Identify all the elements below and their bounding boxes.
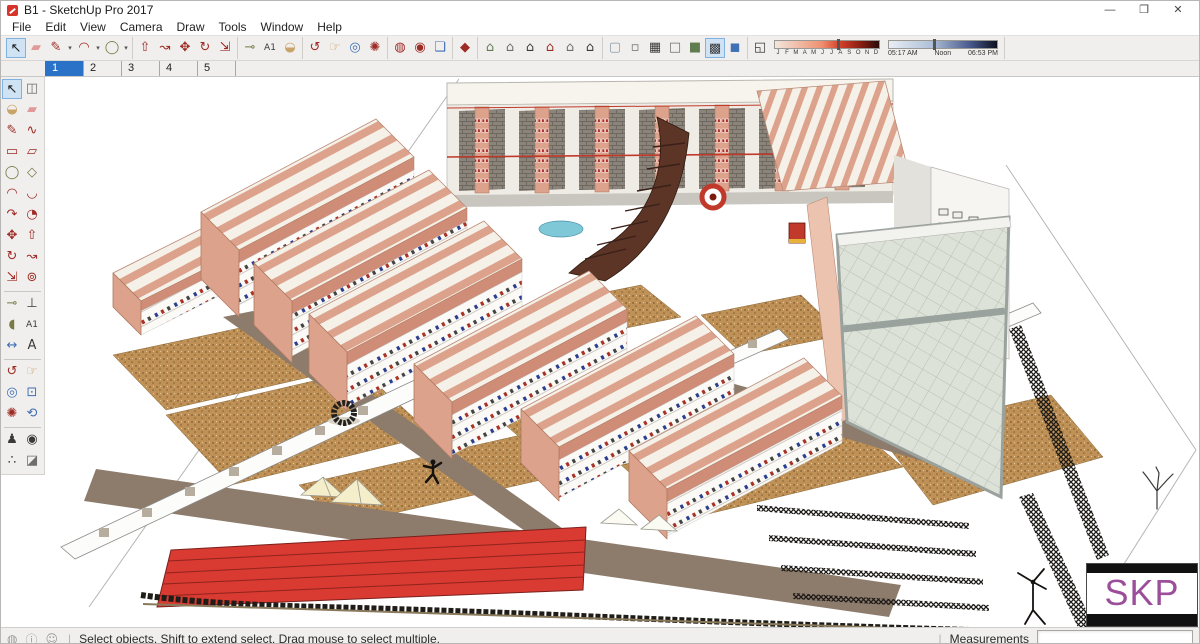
scene-tab-endcap [235,61,252,76]
view-iso-icon[interactable]: ⌂ [480,38,500,58]
pie-tool-icon[interactable]: ◔ [22,205,42,225]
shadow-noon-label: Noon [934,50,951,57]
toolbar-group-draw: ↖ ▰ ✎ ▾ ◠ ▾ ◯ ▾ [4,37,133,59]
paint-bucket-icon[interactable]: ◒ [280,38,300,58]
restore-icon[interactable]: ❐ [1127,1,1161,19]
status-separator: | [68,632,71,644]
status-bar: ◍ ⓘ ☺ | Select objects. Shift to extend … [1,627,1199,644]
shadow-start-time: 05:17 AM [888,50,918,57]
polygon-tool-icon[interactable]: ◇ [22,163,42,183]
palette-divider [4,427,41,428]
select-icon[interactable]: ↖ [6,38,26,58]
orbit-icon[interactable]: ↺ [305,38,325,58]
arc-tool-icon[interactable]: ◠ [2,184,22,204]
arc-icon[interactable]: ◠ [74,38,94,58]
scene-tab-3[interactable]: 3 [121,61,159,76]
protractor-tool-icon[interactable]: ◖ [2,315,22,335]
palette-divider [4,359,41,360]
style-shaded-textures-icon[interactable]: ▩ [705,38,725,58]
scene-tabs-bar: 1 2 3 4 5 [1,61,1199,77]
push-pull-tool-icon[interactable]: ⇧ [22,226,42,246]
push-pull-icon[interactable]: ⇧ [135,38,155,58]
minimize-icon[interactable]: — [1093,1,1127,19]
pool [539,221,583,237]
toolbar-group-styles: ▢ ▫ ▦ □ ■ ▩ ◼ [603,37,748,59]
scene-tab-1[interactable]: 1 [45,61,83,76]
orbit-tool-icon[interactable]: ↺ [2,362,22,382]
look-around-tool-icon[interactable]: ◉ [22,430,42,450]
three-point-arc-tool-icon[interactable]: ↷ [2,205,22,225]
circle-tool-icon[interactable]: ◯ [2,163,22,183]
zoom-extents-icon[interactable]: ✺ [365,38,385,58]
watermark-text: SKP [1087,573,1197,613]
3d-text-tool-icon[interactable]: A [22,336,42,356]
sketchup-logo [7,5,18,16]
time-slider-handle[interactable] [933,39,936,50]
model-viewport[interactable]: ↖◫ ◒▰ ✎∿ ▭▱ ◯◇ ◠◡ ↷◔ ✥⇧ ↻↝ ⇲⊚ ⊸⊥ ◖A1 ↔A … [1,77,1200,627]
window-title: B1 - SketchUp Pro 2017 [24,3,153,17]
warehouse-icon[interactable]: ◆ [455,38,475,58]
title-bar: B1 - SketchUp Pro 2017 — ❐ ✕ [1,1,1199,19]
zoom-window-tool-icon[interactable]: ⊡ [22,383,42,403]
style-shaded-icon[interactable]: ■ [685,38,705,58]
model-3d-view [1,77,1200,627]
zoom-icon[interactable]: ◎ [345,38,365,58]
toolbar-group-construction: ⊸ A1 ◒ [238,37,303,59]
close-icon[interactable]: ✕ [1161,1,1195,19]
windmill-figure [1018,569,1046,624]
rotate-icon[interactable]: ↻ [195,38,215,58]
rotate-tool-icon[interactable]: ↻ [2,247,22,267]
measurements-label: Measurements [950,632,1029,644]
toolbar-group-camera: ↺ ☞ ◎ ✺ [303,37,388,59]
line-icon[interactable]: ✎ [46,38,66,58]
pan-icon[interactable]: ☞ [325,38,345,58]
select-tool-icon[interactable]: ↖ [2,79,22,99]
toolbar-group-location: ◍ ◉ ❏ [388,37,453,59]
menu-camera[interactable]: Camera [113,20,170,34]
toolbar-group-views: ⌂ ⌂ ⌂ ⌂ ⌂ ⌂ [478,37,603,59]
eraser-tool-icon[interactable]: ▰ [22,100,42,120]
toolbar-group-warehouse: ◆ [453,37,478,59]
move-icon[interactable]: ✥ [175,38,195,58]
section-plane-tool-icon[interactable]: ◪ [22,451,42,471]
walk-tool-icon[interactable]: ∴ [2,451,22,471]
style-hidden-line-icon[interactable]: □ [665,38,685,58]
circle-icon[interactable]: ◯ [102,38,122,58]
make-component-icon[interactable]: ◫ [22,79,42,99]
red-wheel [702,186,724,208]
sketch-tree [1143,467,1173,509]
style-monochrome-icon[interactable]: ◼ [725,38,745,58]
scale-icon[interactable]: ⇲ [215,38,235,58]
menu-draw[interactable]: Draw [170,20,212,34]
circle-dropdown-icon[interactable]: ▾ [122,38,130,58]
view-right-icon[interactable]: ⌂ [540,38,560,58]
position-camera-tool-icon[interactable]: ♟ [2,430,22,450]
line-tool-icon[interactable]: ✎ [2,121,22,141]
pan-tool-icon[interactable]: ☞ [22,362,42,382]
measurements-input[interactable] [1037,630,1193,644]
menu-file[interactable]: File [5,20,38,34]
text-icon[interactable]: A1 [260,38,280,58]
month-slider-handle[interactable] [837,39,840,50]
view-top-icon[interactable]: ⌂ [500,38,520,58]
sign-in-icon[interactable]: ☺ [46,632,59,644]
previous-view-tool-icon[interactable]: ⟲ [22,404,42,424]
shadow-month-slider[interactable]: JFMAMJJASOND [774,40,880,56]
credits-icon[interactable]: ⓘ [25,631,37,644]
menu-window[interactable]: Window [254,20,311,34]
move-tool-icon[interactable]: ✥ [2,226,22,246]
large-tool-set: ↖◫ ◒▰ ✎∿ ▭▱ ◯◇ ◠◡ ↷◔ ✥⇧ ↻↝ ⇲⊚ ⊸⊥ ◖A1 ↔A … [1,77,45,475]
eraser-icon[interactable]: ▰ [26,38,46,58]
menu-view[interactable]: View [73,20,113,34]
menu-help[interactable]: Help [310,20,349,34]
skp-watermark: SKP [1086,563,1198,627]
zoom-tool-icon[interactable]: ◎ [2,383,22,403]
follow-me-icon[interactable]: ↝ [155,38,175,58]
axes-tool-icon[interactable]: ⊥ [22,294,42,314]
view-left-icon[interactable]: ⌂ [560,38,580,58]
shadow-time-slider[interactable]: 05:17 AM Noon 06:53 PM [888,40,998,57]
view-back-icon[interactable]: ⌂ [580,38,600,58]
text-tool-icon[interactable]: A1 [22,315,42,335]
menu-bar: File Edit View Camera Draw Tools Window … [1,19,1199,35]
rotated-rectangle-tool-icon[interactable]: ▱ [22,142,42,162]
toolbar-group-edit: ⇧ ↝ ✥ ↻ ⇲ [133,37,238,59]
scene-tab-5[interactable]: 5 [197,61,235,76]
palette-divider [4,291,41,292]
menu-tools[interactable]: Tools [212,20,254,34]
scene-tab-4[interactable]: 4 [159,61,197,76]
pergola-roof [757,81,911,191]
rectangle-tool-icon[interactable]: ▭ [2,142,22,162]
dimension-tool-icon[interactable]: ↔ [2,336,22,356]
scene-tab-2[interactable]: 2 [83,61,121,76]
style-wireframe-icon[interactable]: ▦ [645,38,665,58]
toggle-terrain-icon[interactable]: ◉ [410,38,430,58]
freehand-tool-icon[interactable]: ∿ [22,121,42,141]
sketchup-window: B1 - SketchUp Pro 2017 — ❐ ✕ File Edit V… [0,0,1200,644]
running-track [157,527,586,607]
main-toolbar: ↖ ▰ ✎ ▾ ◠ ▾ ◯ ▾ ⇧ ↝ ✥ ↻ ⇲ ⊸ A1 ◒ ↺ ☞ ◎ ✺ [1,35,1199,61]
two-point-arc-tool-icon[interactable]: ◡ [22,184,42,204]
shadow-toggle-icon[interactable]: ◱ [750,38,770,58]
tape-measure-tool-icon[interactable]: ⊸ [2,294,22,314]
tape-measure-icon[interactable]: ⊸ [240,38,260,58]
scale-tool-icon[interactable]: ⇲ [2,268,22,288]
geolocation-icon[interactable]: ◍ [7,632,17,644]
view-front-icon[interactable]: ⌂ [520,38,540,58]
add-location-icon[interactable]: ◍ [390,38,410,58]
shadow-end-time: 06:53 PM [968,50,998,57]
cable-car [789,223,805,243]
zoom-extents-tool-icon[interactable]: ✺ [2,404,22,424]
offset-tool-icon[interactable]: ⊚ [22,268,42,288]
photo-textures-icon[interactable]: ❏ [430,38,450,58]
status-hint-text: Select objects. Shift to extend select. … [79,632,440,644]
watermark-bottom-bar [1087,614,1197,626]
follow-me-tool-icon[interactable]: ↝ [22,247,42,267]
toolbar-group-shadows: ◱ JFMAMJJASOND 05:17 AM Noon 06:53 PM [748,37,1005,59]
paint-bucket-tool-icon[interactable]: ◒ [2,100,22,120]
arc-dropdown-icon[interactable]: ▾ [94,38,102,58]
style-xray-icon[interactable]: ▢ [605,38,625,58]
line-dropdown-icon[interactable]: ▾ [66,38,74,58]
menu-edit[interactable]: Edit [38,20,73,34]
style-back-edges-icon[interactable]: ▫ [625,38,645,58]
measurements-separator: | [939,632,942,644]
